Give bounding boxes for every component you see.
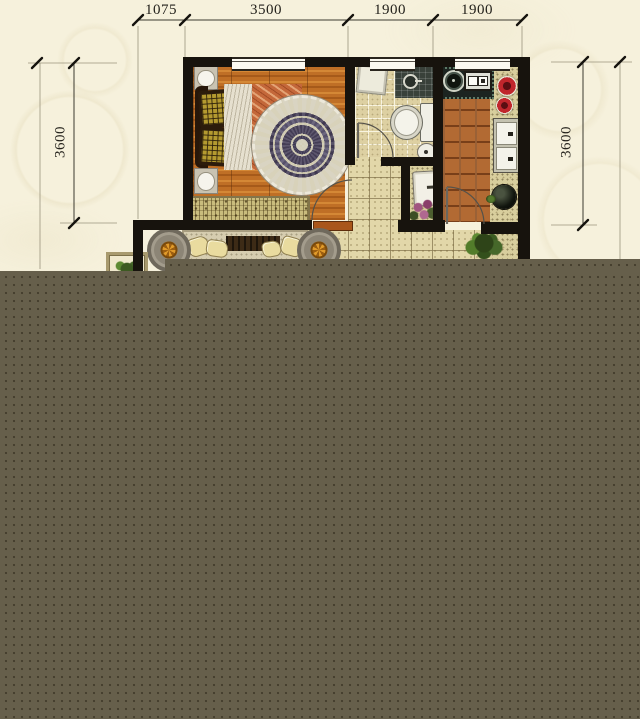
dim-top-3500: 3500 <box>250 2 282 19</box>
wall-top-2 <box>305 57 370 67</box>
stove-burner-icon <box>443 70 465 92</box>
wall-living-left <box>133 220 143 272</box>
red-pot-top <box>497 76 517 96</box>
dim-left-3600: 3600 <box>53 126 70 158</box>
wall-top-3 <box>415 57 455 67</box>
dim-right-3600: 3600 <box>559 126 576 158</box>
kitchen-double-sink <box>493 118 520 173</box>
sofa-cushion-2 <box>205 239 229 259</box>
bed-sheet <box>224 84 252 170</box>
kitchen-tile-floor <box>443 95 490 222</box>
floor-plan-image: 1075 3500 1900 1900 3600 3600 <box>0 0 640 719</box>
kitchen-appliance <box>464 71 492 91</box>
kitchen-plant-bowl <box>492 185 516 209</box>
wall-left <box>183 57 193 230</box>
window-bathroom <box>370 57 415 71</box>
overlay-block-main <box>0 271 640 719</box>
dim-top-1075: 1075 <box>145 2 177 19</box>
wall-vanity-left <box>401 166 410 226</box>
toilet-bowl <box>390 105 423 140</box>
red-pot-bottom <box>496 97 513 114</box>
wall-bedroom-south <box>143 220 312 230</box>
window-bedroom <box>232 57 305 71</box>
dim-top-1900-b: 1900 <box>461 2 493 19</box>
sink-basin-bottom <box>496 147 517 170</box>
sink-basin-top <box>496 122 517 145</box>
nightstand-stool-bottom <box>194 168 218 194</box>
shower-head-icon <box>403 74 418 89</box>
wall-bathroom-kitchen <box>433 67 443 232</box>
hallway-tile-floor <box>348 157 401 232</box>
bedroom-bench <box>189 196 310 223</box>
balcony-plant <box>462 230 506 259</box>
dim-top-1900-a: 1900 <box>374 2 406 19</box>
wall-bathroom-south <box>381 157 437 166</box>
window-kitchen <box>455 57 510 71</box>
round-rug <box>252 95 352 195</box>
wall-right <box>518 57 530 259</box>
wall-bedroom-bathroom <box>345 67 355 165</box>
wall-kitchen-south <box>481 222 518 234</box>
wall-hall-south <box>398 220 445 232</box>
